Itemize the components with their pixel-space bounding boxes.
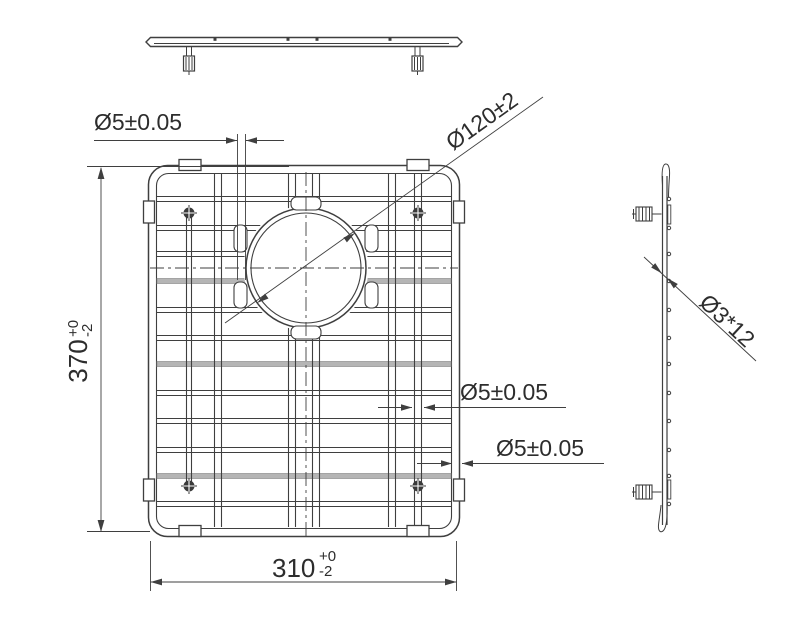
dim-label-height: 370 [63, 339, 93, 382]
top-view-strip [146, 38, 462, 47]
top-view-wire-ticks [214, 38, 392, 41]
side-wire-ends [667, 197, 670, 505]
dim-label-wire-frame: Ø5±0.05 [496, 435, 584, 461]
side-screw-top [632, 207, 662, 221]
dim-width: 310 +0 -2 [151, 541, 457, 591]
dim-label-width: 310 [272, 553, 315, 583]
top-view-foot-left [184, 47, 195, 76]
side-view [632, 164, 671, 532]
top-view-foot-right [412, 47, 423, 76]
dim-label-wire-top: Ø5±0.05 [94, 109, 182, 135]
technical-drawing-page: Ø5±0.05 Ø120±2 370 +0 -2 [0, 0, 800, 642]
side-screw-bottom [632, 485, 662, 499]
side-bar-top-hook [662, 164, 669, 197]
dim-label-width-tol-lower: -2 [319, 563, 332, 580]
front-view [144, 160, 465, 541]
side-clip-marks [668, 205, 671, 499]
sink-grid-drawing: Ø5±0.05 Ø120±2 370 +0 -2 [0, 0, 800, 642]
dim-label-side-wire: Ø3*12 [695, 289, 760, 352]
dim-label-height-tol-lower: -2 [79, 324, 96, 337]
dim-side-wire: Ø3*12 [644, 257, 760, 361]
top-view [146, 38, 462, 76]
dim-label-wire-mid: Ø5±0.05 [460, 379, 548, 405]
side-bar [663, 176, 668, 525]
